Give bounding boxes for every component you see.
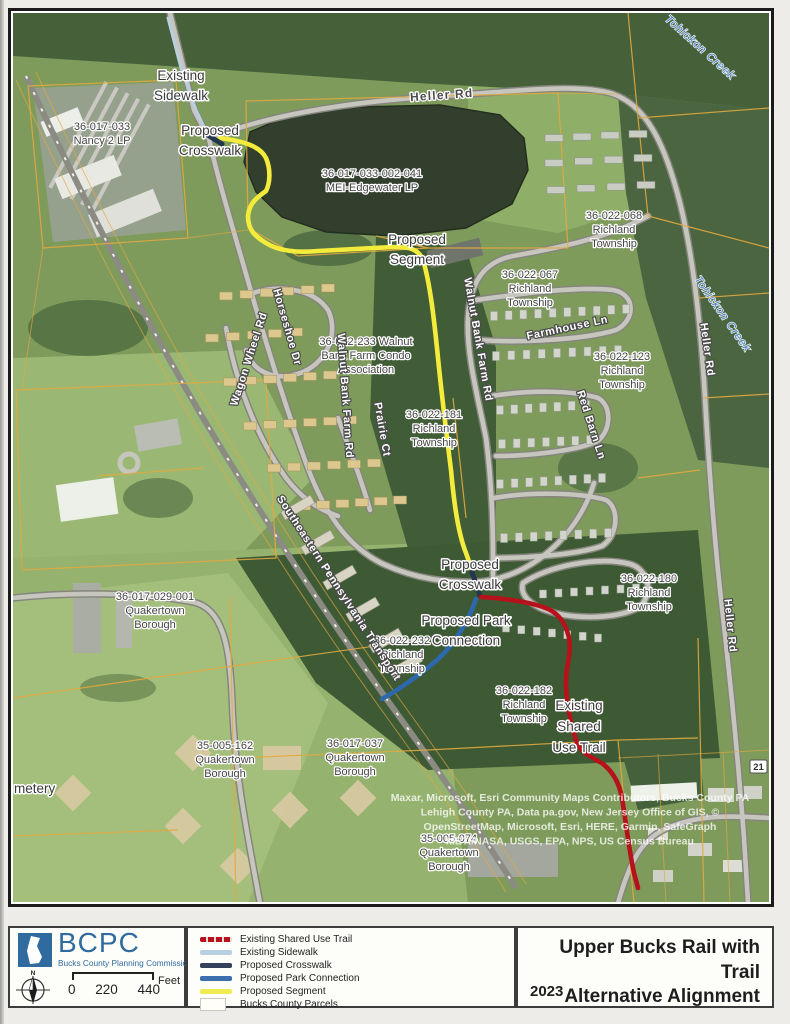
- bucks-county-shape-icon: [18, 933, 52, 967]
- route-shield-21: 21: [750, 760, 767, 773]
- north-arrow-compass: N: [14, 968, 52, 1006]
- map-label-p182: 36-022-182RichlandTownship: [496, 685, 552, 725]
- legend-item-proposed-park-connection: Proposed Park Connection: [200, 972, 514, 984]
- map-label-trail-c: ExistingSharedUse Trail: [552, 698, 605, 755]
- legend-item-proposed-crosswalk: Proposed Crosswalk: [200, 959, 514, 971]
- map-label-p181: 36-022-181RichlandTownship: [406, 409, 462, 449]
- legend-item-existing-shared-use-trail: Existing Shared Use Trail: [200, 933, 514, 945]
- map-label-p67: 36-022-067RichlandTownship: [502, 269, 558, 309]
- map-label-p37: 36-017-037QuakertownBorough: [325, 738, 384, 778]
- map-label-p123: 36-022-123RichlandTownship: [594, 351, 650, 391]
- map-frame: 21 ExistingSidewalkProposedCrosswalk36-0…: [8, 8, 774, 907]
- scale-bar: Feet 0 220 440: [72, 972, 180, 997]
- legend-label: Proposed Segment: [240, 986, 326, 997]
- map-footer: BCPC Bucks County Planning Commission N …: [8, 926, 774, 1008]
- org-abbreviation: BCPC: [58, 927, 140, 959]
- scanned-map-page: 21 ExistingSidewalkProposedCrosswalk36-0…: [0, 0, 790, 1024]
- legend-label: Proposed Crosswalk: [240, 960, 332, 971]
- scale-mid: 220: [95, 982, 118, 997]
- map-label-cemetery: metery: [14, 781, 56, 796]
- map-year: 2023: [530, 983, 563, 1000]
- existing-sidewalk-swatch: [200, 950, 232, 955]
- legend-item-proposed-segment: Proposed Segment: [200, 985, 514, 997]
- legend-panel: Existing Shared Use Trail Existing Sidew…: [186, 926, 516, 1008]
- map-title-line2: Alternative Alignment: [530, 985, 760, 1010]
- map-label-p162: 35-005-162QuakertownBorough: [195, 740, 254, 780]
- legend-item-bucks-county-parcels: Bucks County Parcels: [200, 998, 514, 1010]
- proposed-segment-swatch: [200, 989, 232, 994]
- legend-label: Bucks County Parcels: [240, 999, 338, 1010]
- bucks-county-parcels-swatch: [200, 998, 226, 1011]
- map-label-p68: 36-022-068RichlandTownship: [586, 210, 642, 250]
- map-title-line1: Upper Bucks Rail with Trail: [530, 936, 760, 985]
- route-shield-number: 21: [753, 762, 764, 773]
- map-title: Upper Bucks Rail with Trail Alternative …: [530, 936, 760, 1010]
- scale-bracket: [72, 972, 154, 980]
- legend-label: Existing Shared Use Trail: [240, 934, 352, 945]
- proposed-crosswalk-swatch: [200, 963, 232, 968]
- compass-n-label: N: [31, 970, 36, 977]
- legend-label: Existing Sidewalk: [240, 947, 318, 958]
- bcpc-logo: [18, 933, 52, 967]
- industrial-area: [33, 81, 186, 242]
- existing-shared-use-trail-swatch: [200, 937, 232, 942]
- legend-label: Proposed Park Connection: [240, 973, 360, 984]
- legend-item-existing-sidewalk: Existing Sidewalk: [200, 946, 514, 958]
- title-panel: Upper Bucks Rail with Trail Alternative …: [516, 926, 774, 1008]
- agency-panel: BCPC Bucks County Planning Commission N …: [8, 926, 186, 1008]
- org-name: Bucks County Planning Commission: [58, 958, 192, 968]
- map-label-p180: 36-022-180RichlandTownship: [621, 573, 677, 613]
- proposed-park-connection-swatch: [200, 976, 232, 981]
- scale-end: 440: [137, 982, 160, 997]
- scale-start: 0: [68, 982, 76, 997]
- scale-unit: Feet: [158, 975, 180, 987]
- aerial-map-canvas: 21 ExistingSidewalkProposedCrosswalk36-0…: [13, 13, 769, 902]
